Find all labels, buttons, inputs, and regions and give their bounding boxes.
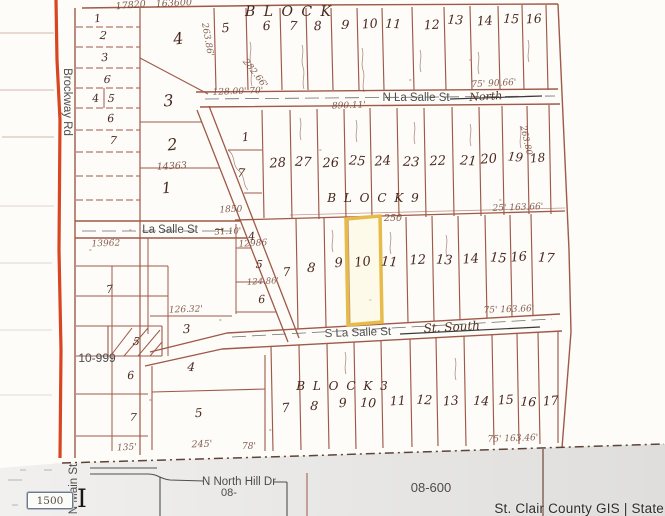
lot-number: 13 — [442, 392, 459, 408]
lot-number: 4 — [247, 230, 256, 244]
lot-number: 3 — [101, 51, 109, 64]
area-label-08-600: 08-600 — [411, 480, 451, 495]
dimension-label: 1850 — [219, 204, 243, 215]
dimension-label: 14363 — [156, 160, 187, 173]
lot-number: 28 — [268, 155, 287, 171]
lot-number: 10 — [354, 254, 372, 271]
lot-number: 7 — [109, 134, 117, 148]
dimension-label: 78' — [242, 442, 256, 452]
lot-number: 15 — [503, 11, 520, 27]
lot-number: 25 — [347, 153, 366, 169]
lot-number: 7 — [129, 411, 137, 424]
lot-number: 1 — [93, 12, 101, 26]
lot-number: 5 — [221, 20, 230, 36]
street-label-la-salle-st: La Salle St — [142, 224, 198, 236]
lot-number: 7 — [282, 265, 291, 280]
lot-number: 11 — [385, 16, 402, 32]
lot-number: 4 — [91, 92, 100, 106]
dimension-label: 126.32' — [169, 304, 203, 315]
dimension-label: 31.10' — [214, 226, 241, 237]
lot-number: 17 — [542, 392, 559, 408]
road-marker-1500: 1500 — [27, 492, 73, 509]
highlighted-parcel[interactable] — [346, 216, 382, 325]
dimension-label: 75' 163.66' — [483, 304, 534, 316]
lot-number: 8 — [310, 398, 319, 414]
lot-number: 19 — [507, 149, 524, 165]
lot-number: 6 — [107, 112, 115, 125]
lot-number: 8 — [307, 261, 316, 277]
lot-number: 2 — [165, 135, 178, 155]
lot-number: 12 — [423, 17, 440, 33]
lot-number: 5 — [255, 258, 263, 271]
lot-number: 16 — [525, 11, 542, 27]
block-label-3: B L O C K 3 — [295, 379, 389, 393]
lot-number: 6 — [103, 73, 111, 86]
lot-number: 13 — [447, 11, 464, 27]
lot-number: 26 — [321, 156, 339, 172]
lot-number: 22 — [428, 154, 446, 170]
lot-number: 3 — [163, 91, 175, 111]
dimension-label: 25' 163.66' — [491, 202, 543, 214]
lot-number: 6 — [127, 369, 135, 382]
lot-number: 8 — [313, 18, 322, 33]
text-cursor: I — [77, 486, 87, 511]
dimension-label: 250 — [383, 213, 402, 224]
lot-number: 7 — [106, 283, 114, 297]
lot-number: 3 — [182, 322, 191, 337]
lot-number: 6 — [258, 293, 266, 306]
lot-number: 7 — [281, 400, 290, 416]
lot-number: 14 — [476, 12, 493, 28]
lot-number: 20 — [479, 151, 498, 167]
lot-number: 6 — [262, 18, 271, 34]
lot-number: 14 — [462, 251, 480, 267]
lot-number: 9 — [338, 395, 347, 410]
lot-number: 24 — [373, 153, 392, 169]
hand-label-north: North — [468, 89, 503, 104]
lot-number: 7 — [289, 18, 298, 34]
block-label-9: B L O C K 9 — [326, 191, 420, 205]
lot-number: 13 — [435, 252, 453, 268]
lot-number: 2 — [98, 29, 107, 43]
lot-number: 27 — [294, 155, 313, 171]
lot-number: 5 — [107, 92, 115, 105]
lot-number: 1 — [161, 179, 172, 198]
area-label-10-999: 10-999 — [78, 351, 116, 365]
lot-number: 21 — [458, 153, 477, 169]
street-label-brockway-rd: Brockway Rd — [61, 68, 73, 136]
lot-number: 17 — [537, 250, 555, 266]
dimension-label: 135' — [117, 442, 137, 453]
dimension-label: 245' — [190, 439, 212, 451]
lot-number: 12 — [409, 253, 426, 269]
map-canvas[interactable]: Brockway RdN La Salle StNorthLa Salle St… — [0, 0, 665, 516]
lot-number: 5 — [132, 335, 140, 349]
lot-number: 9 — [334, 256, 343, 272]
lot-number: 11 — [380, 254, 398, 270]
street-label-n-north-hill-dr: N North Hill Dr — [202, 476, 276, 488]
lot-number: 12 — [416, 391, 433, 407]
lot-number: 5 — [194, 406, 203, 420]
dimension-label: 128.00' 70' — [212, 86, 263, 98]
street-label-n-la-salle-st: N La Salle St — [382, 92, 450, 104]
lot-number: 18 — [529, 150, 546, 165]
lot-number: 16 — [510, 249, 528, 265]
area-label-08: 08- — [221, 487, 237, 499]
lot-number: 4 — [186, 360, 196, 375]
lot-number: 7 — [237, 166, 246, 181]
lot-number: 15 — [489, 250, 507, 266]
lot-number: 15 — [497, 392, 514, 408]
dimension-label: 13962 — [91, 238, 120, 249]
hand-label-st-south: St. South — [423, 319, 480, 336]
street-label-s-la-salle-st: S La Salle St — [324, 326, 392, 340]
lot-number: 1 — [241, 130, 250, 145]
dimension-label: 75' 163.46' — [487, 433, 538, 445]
lot-number: 23 — [402, 155, 420, 171]
attribution-text: St. Clair County GIS | State — [494, 501, 664, 516]
lot-number: 14 — [473, 393, 490, 409]
dimension-label: 890.11' — [332, 100, 366, 111]
lot-number: 16 — [520, 393, 537, 409]
lot-number: 10 — [360, 395, 377, 411]
dimension-label: 124.86' — [247, 276, 280, 288]
plat-map: Brockway RdN La Salle StNorthLa Salle St… — [0, 0, 665, 516]
lot-number: 11 — [389, 393, 406, 409]
lot-number: 10 — [361, 15, 378, 31]
lot-number: 9 — [341, 17, 350, 33]
